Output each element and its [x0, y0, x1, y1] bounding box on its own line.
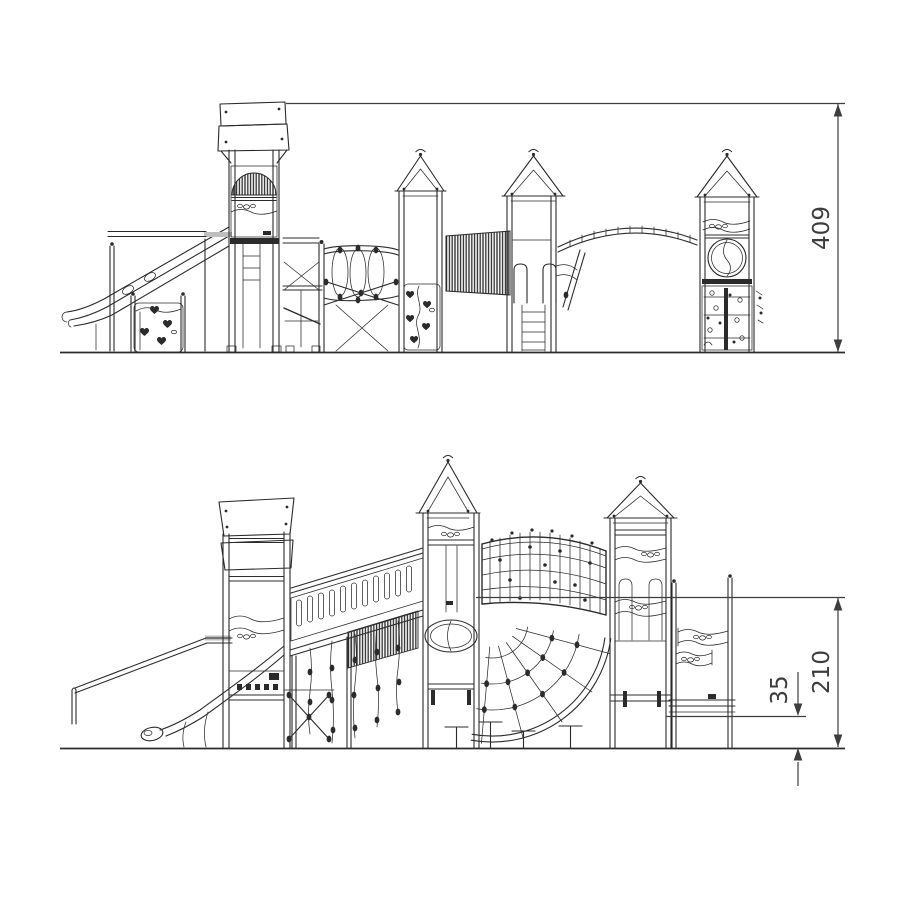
right-tower: [604, 477, 677, 749]
rope-truss-section: [283, 238, 398, 352]
main-tower-side: [219, 498, 294, 748]
diagonal-plank: [563, 250, 585, 310]
playground-elevation-drawing: 409: [0, 0, 900, 900]
dimension-overall-height: 409: [286, 104, 845, 353]
dimension-lower-height: 35: [666, 672, 806, 717]
heart-hold-icon: [157, 337, 166, 345]
dimension-210-label: 210: [809, 650, 835, 694]
tower-two: [502, 150, 585, 353]
under-deck-net: [348, 611, 418, 668]
net-bridge: [482, 528, 606, 615]
roof-finial-icon: [416, 150, 426, 157]
heart-hold-icon: [163, 320, 172, 328]
arrow-up-icon: [834, 598, 843, 611]
dimension-35-label: 35: [767, 675, 793, 704]
dimension-409-label: 409: [809, 206, 835, 250]
heart-hold-icon: [422, 323, 430, 330]
arrow-down-icon: [834, 340, 843, 353]
main-tower: [218, 102, 289, 352]
arrow-down-icon: [834, 735, 843, 748]
heart-hold-icon: [406, 291, 414, 298]
central-tower: [416, 456, 480, 749]
heart-hold-icon: [140, 328, 149, 336]
arch-window: [232, 173, 276, 195]
ramp-bridge: [284, 548, 423, 748]
heart-hold-icon: [406, 315, 414, 322]
roof-finial-icon: [722, 150, 732, 157]
tower-three: [695, 150, 763, 353]
fan-climber: [471, 627, 611, 744]
roof-finial-icon: [529, 150, 539, 157]
heart-hold-icon: [423, 301, 431, 308]
climbing-net-panel: [446, 231, 510, 295]
roof-finial-icon: [443, 456, 453, 463]
left-platform: [108, 232, 232, 352]
dimension-upper-height: 210: [476, 598, 845, 748]
heart-hold-icon: [410, 336, 418, 343]
tower-one: [395, 150, 446, 353]
heart-hold-icon: [150, 306, 159, 314]
arrow-up-icon: [794, 748, 803, 761]
heart-climb-panel: [131, 292, 185, 352]
rope-arch: [558, 226, 697, 252]
arrow-down-icon: [794, 704, 803, 717]
tunnel-ring: [425, 620, 477, 652]
balance-posts: [445, 722, 582, 748]
low-platform: [669, 574, 735, 748]
deck-band: [230, 238, 279, 244]
ground-level-arrow: [794, 748, 803, 786]
roof-finial-icon: [636, 477, 646, 484]
top-elevation-view: 409: [60, 102, 845, 353]
tunnel-ring: [708, 239, 746, 277]
slide-side: [140, 646, 284, 747]
bottom-elevation-view: 210 35: [60, 456, 845, 787]
drawing-page: 409: [0, 0, 900, 900]
arrow-up-icon: [834, 104, 843, 117]
handrail: [72, 638, 232, 724]
